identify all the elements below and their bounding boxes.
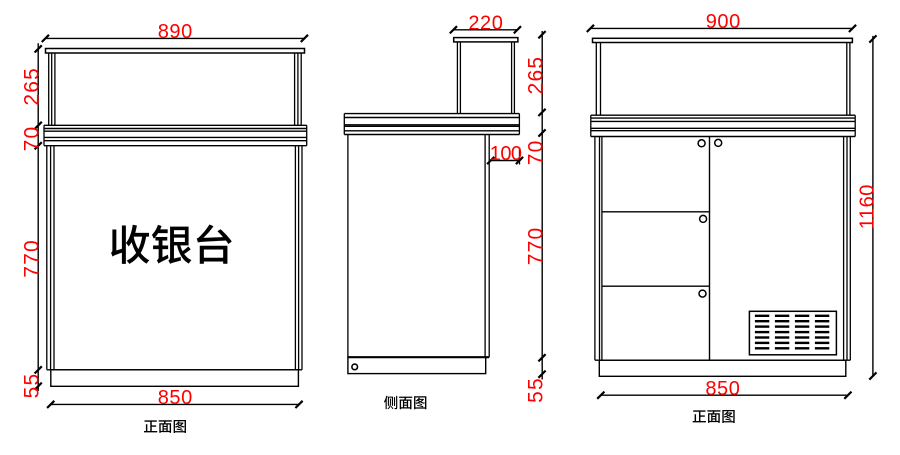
- svg-text:900: 900: [706, 11, 741, 33]
- svg-text:265: 265: [524, 56, 547, 95]
- svg-text:55: 55: [524, 377, 547, 403]
- svg-text:220: 220: [468, 12, 503, 34]
- svg-text:70: 70: [524, 139, 547, 165]
- svg-text:850: 850: [705, 378, 740, 400]
- svg-text:890: 890: [158, 21, 193, 43]
- svg-text:265: 265: [21, 67, 44, 106]
- svg-text:770: 770: [524, 227, 547, 266]
- svg-text:100: 100: [490, 143, 522, 165]
- svg-text:770: 770: [21, 239, 44, 278]
- svg-text:70: 70: [21, 126, 44, 152]
- svg-text:1160: 1160: [857, 184, 879, 229]
- svg-text:850: 850: [158, 387, 193, 409]
- svg-text:55: 55: [21, 373, 44, 399]
